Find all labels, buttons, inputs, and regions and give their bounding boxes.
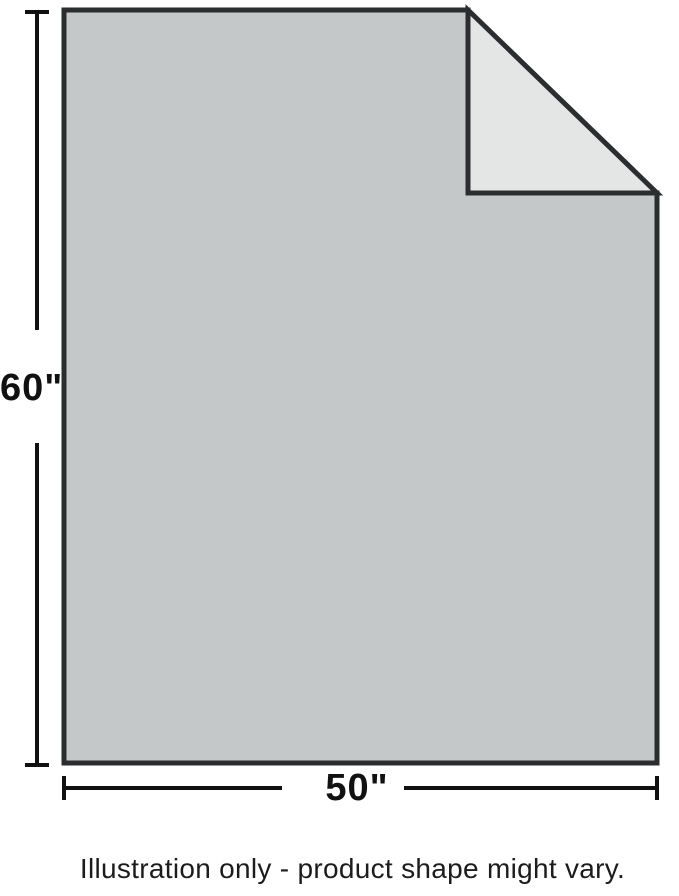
- caption-text: Illustration only - product shape might …: [26, 853, 679, 885]
- height-dimension-label: 60": [0, 368, 58, 408]
- folded-corner: [468, 10, 657, 193]
- product-dimension-diagram: 60" 50" Illustration only - product shap…: [0, 0, 679, 896]
- width-dimension-label: 50": [299, 769, 415, 807]
- diagram-canvas: [0, 0, 679, 896]
